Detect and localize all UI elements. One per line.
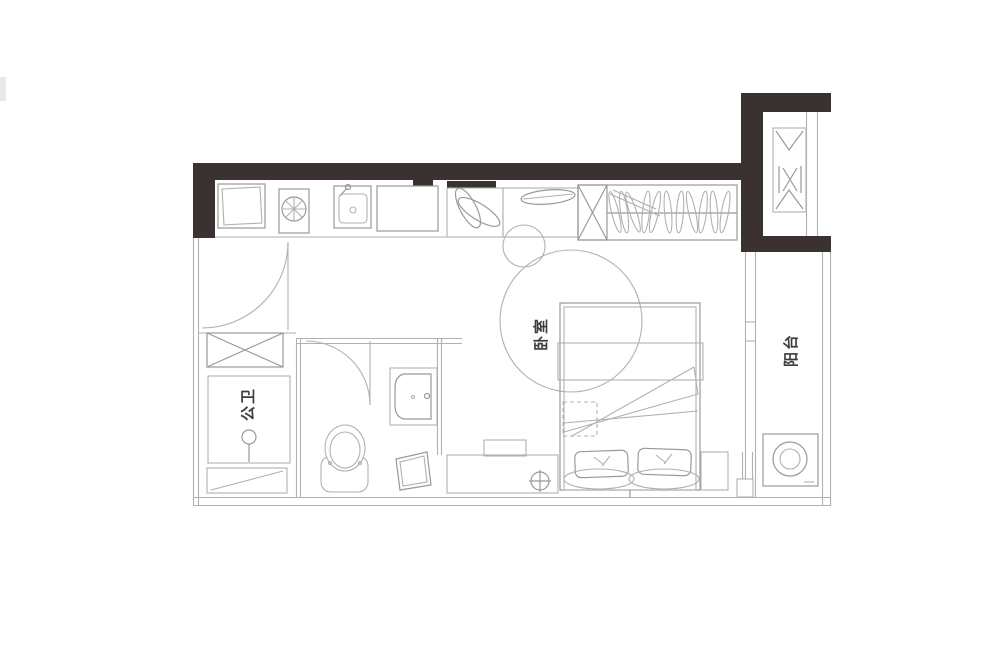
- entry-door: [202, 242, 288, 330]
- floor-plan: 公卫 卧室 阳台: [0, 0, 1000, 666]
- toilet-icon: [321, 425, 368, 492]
- floor-plan-drawing: [0, 0, 1000, 666]
- plant-cabinet: [447, 185, 504, 237]
- kitchen-sink-icon: [334, 185, 371, 229]
- shoe-cabinet: [207, 333, 283, 367]
- wardrobe: [578, 185, 737, 240]
- side-cabinet: [503, 188, 578, 237]
- pillow-icon: [638, 448, 692, 476]
- floor-drain-icon: [529, 470, 551, 492]
- vanity-sink-icon: [390, 368, 437, 425]
- bench: [207, 468, 287, 493]
- edge-artifact: [0, 77, 6, 101]
- decor-circle-large: [500, 250, 642, 392]
- bed: [558, 303, 703, 497]
- stool: [396, 452, 431, 490]
- desk: [447, 440, 558, 493]
- sliding-door: [745, 252, 756, 497]
- bathroom-door: [306, 341, 370, 405]
- shower-head-icon: [242, 430, 256, 444]
- decor-circle-small: [503, 225, 545, 267]
- kitchen-cabinet: [218, 184, 265, 228]
- nightstand: [701, 452, 728, 490]
- duct-shaft-icon: [773, 128, 806, 212]
- shower: [208, 376, 290, 463]
- pillow-icon: [575, 450, 629, 478]
- fridge: [377, 186, 438, 231]
- cooktop-icon: [279, 189, 309, 233]
- washing-machine-icon: [763, 434, 818, 486]
